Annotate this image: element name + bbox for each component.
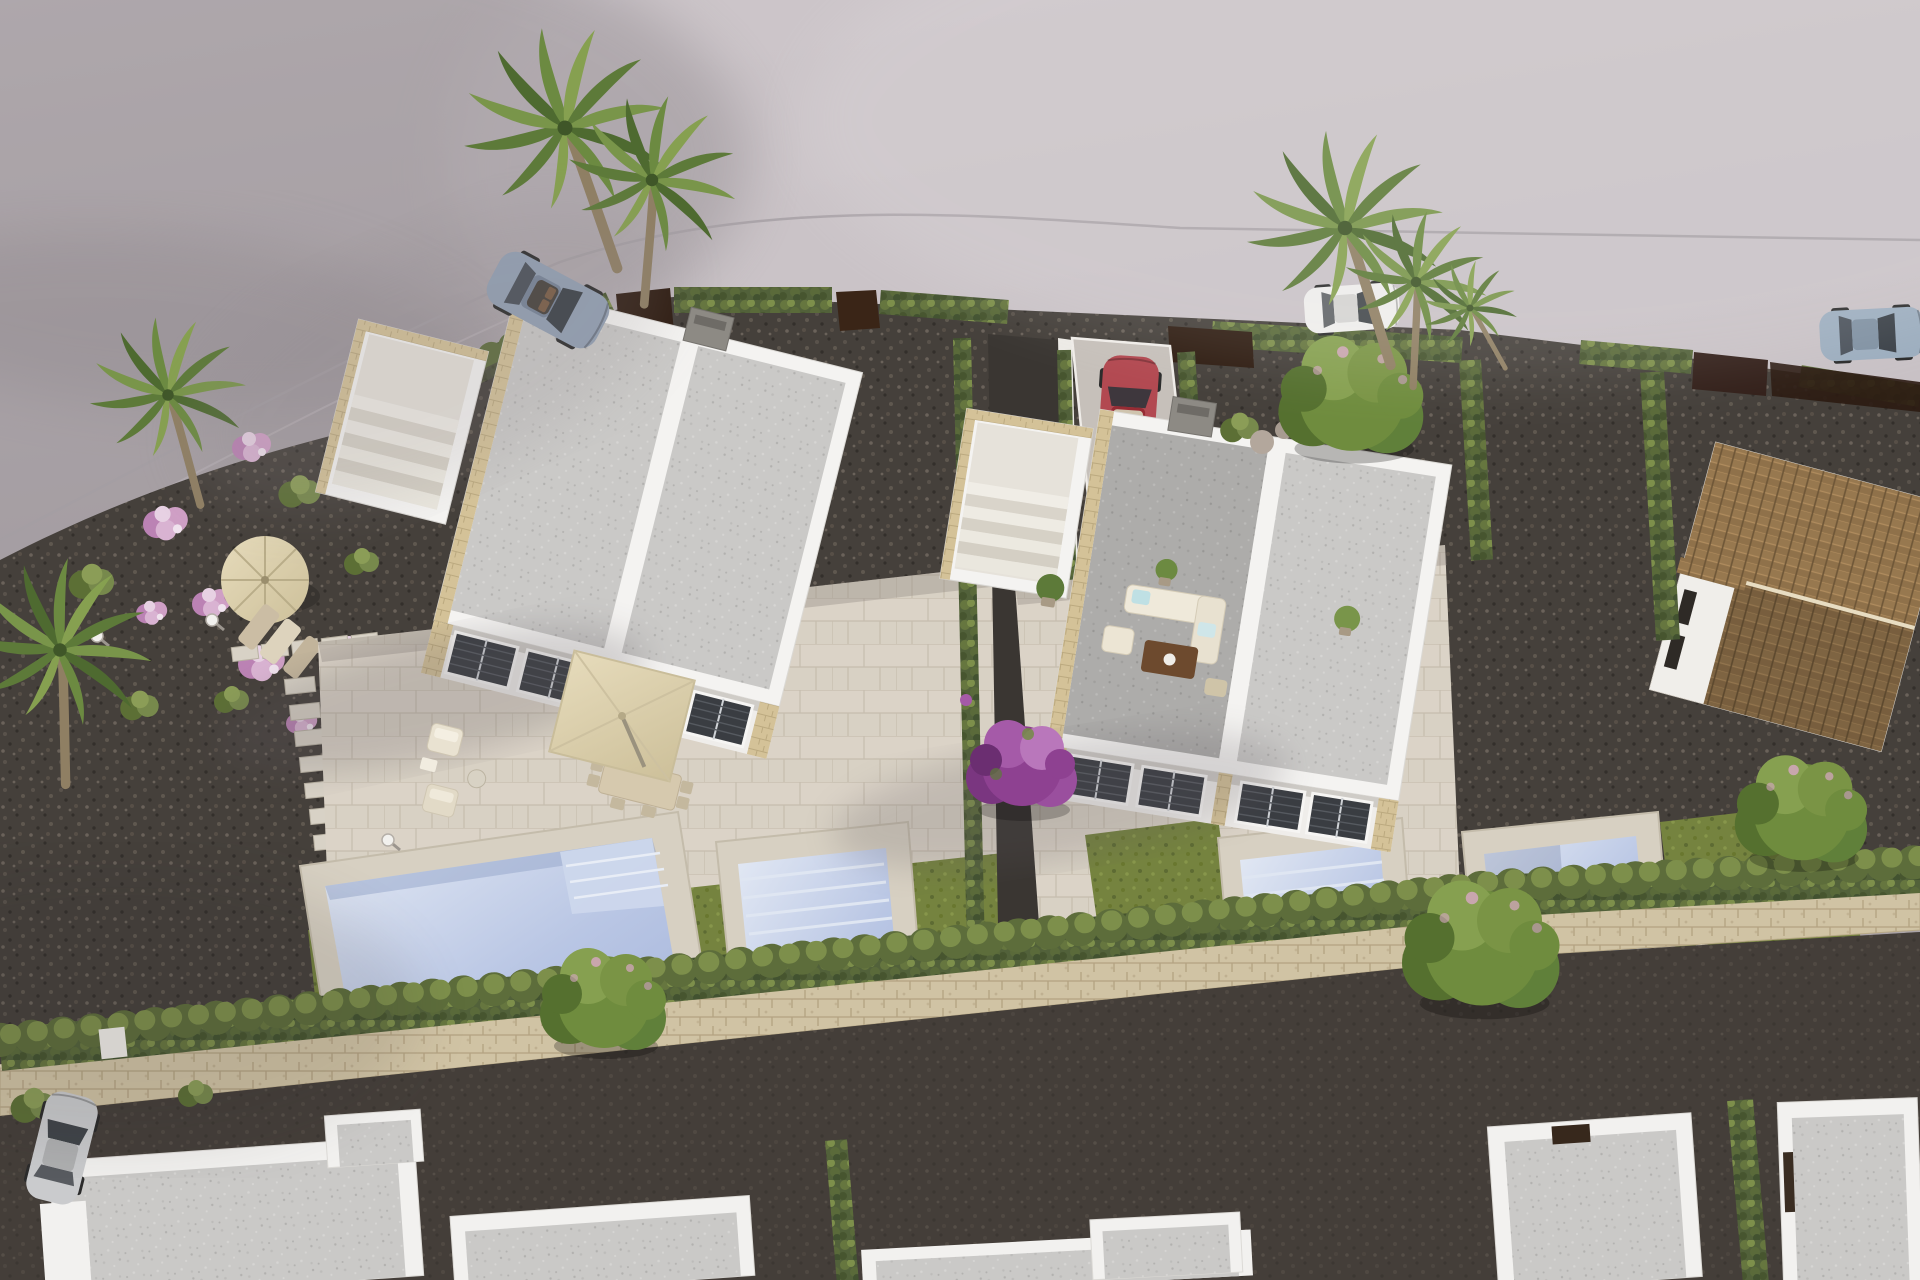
suv-car	[1818, 303, 1920, 364]
hedge-row	[1470, 360, 1482, 560]
render-canvas	[0, 0, 1920, 1280]
chimney	[1168, 397, 1217, 437]
aqua-cushion	[1131, 589, 1151, 606]
timber-gate	[836, 290, 880, 331]
roof-terrace	[940, 408, 1093, 598]
house	[1777, 1098, 1920, 1280]
pouf	[1204, 677, 1228, 697]
terrace-stairs	[955, 482, 1069, 583]
window	[1307, 793, 1373, 842]
garden-gate	[99, 1027, 128, 1060]
dark-door	[1551, 1124, 1590, 1145]
stone-ball	[1250, 430, 1274, 454]
house	[1487, 1113, 1702, 1280]
hedge-row	[1652, 372, 1668, 640]
hedge-column	[1740, 1100, 1756, 1280]
hedge-column	[836, 1140, 848, 1280]
